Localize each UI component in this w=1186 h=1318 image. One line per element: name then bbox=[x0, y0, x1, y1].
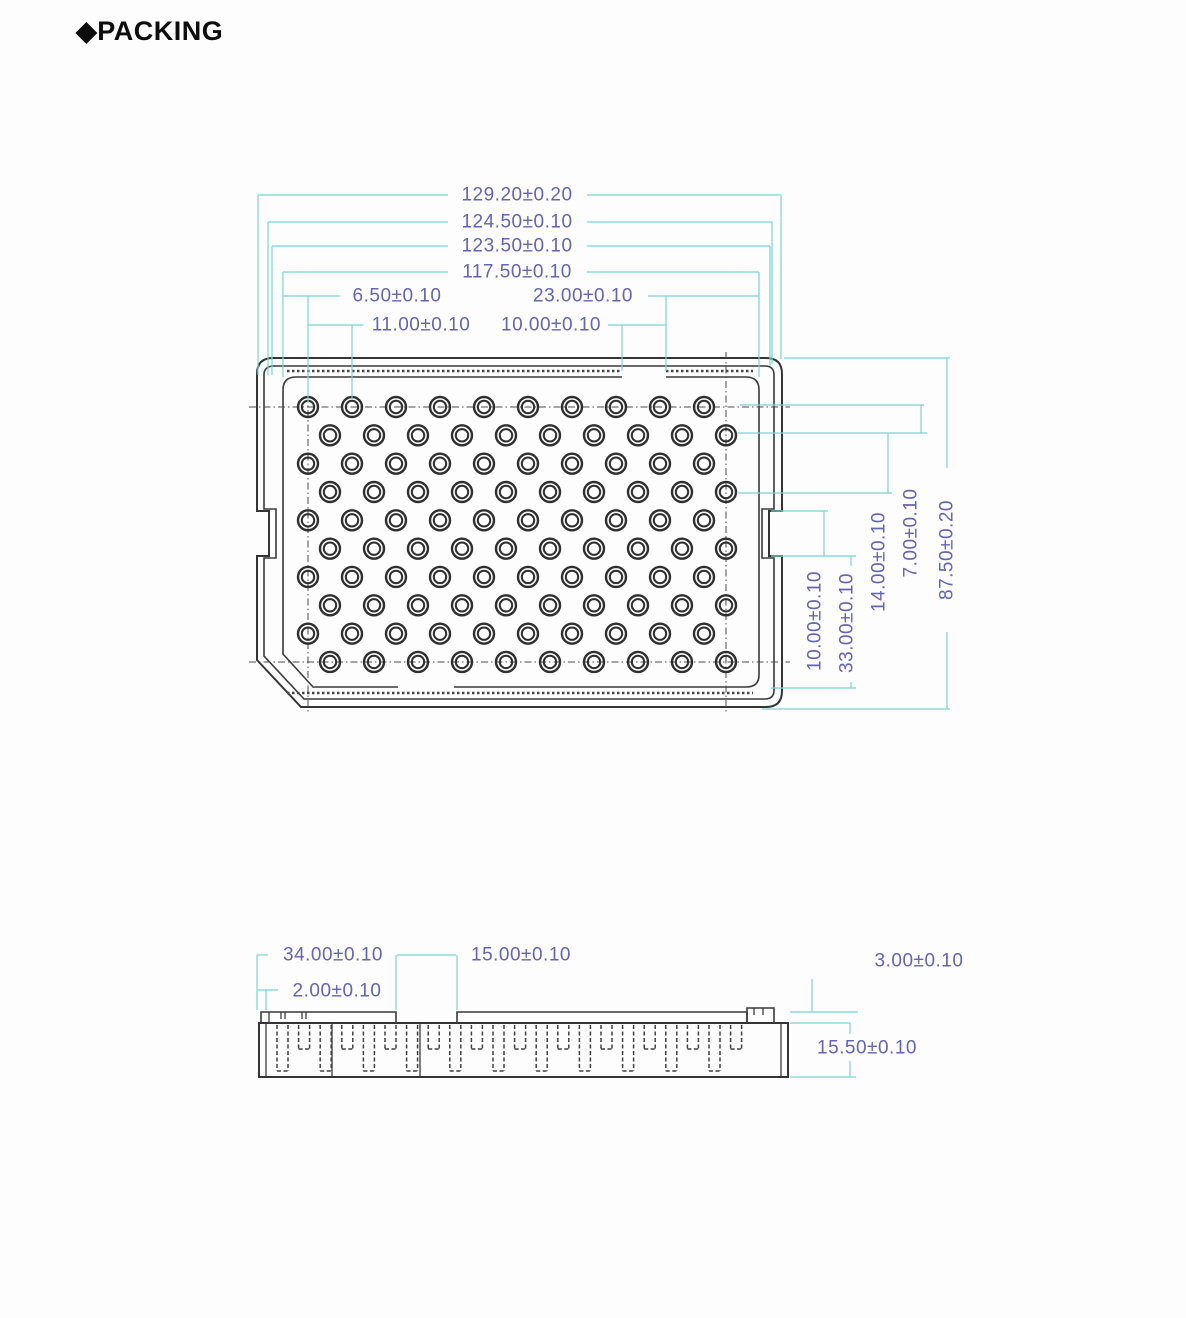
tray-hole-inner bbox=[412, 429, 424, 441]
tray-hole-inner bbox=[412, 542, 424, 554]
tray-hole-inner bbox=[500, 429, 512, 441]
tray-hole-inner bbox=[588, 599, 600, 611]
tray-hole-inner bbox=[478, 457, 490, 469]
tray-hole-inner bbox=[368, 542, 380, 554]
tray-hole-inner bbox=[566, 571, 578, 583]
tray-hole-inner bbox=[566, 627, 578, 639]
dim-lip-thickness: 3.00±0.10 bbox=[875, 951, 964, 972]
tray-hole-inner bbox=[610, 457, 622, 469]
tray-hole-inner bbox=[324, 542, 336, 554]
tray-hole-inner bbox=[434, 627, 446, 639]
tray-hole-inner bbox=[346, 457, 358, 469]
tray-hole-inner bbox=[478, 514, 490, 526]
tray-hole-inner bbox=[676, 599, 688, 611]
packing-drawing: 129.20±0.20 124.50±0.10 123.50±0.10 117.… bbox=[0, 0, 1186, 1318]
tray-hole-inner bbox=[676, 542, 688, 554]
tray-hole-inner bbox=[654, 457, 666, 469]
tray-hole-inner bbox=[456, 599, 468, 611]
dim-slot-to-edge: 23.00±0.10 bbox=[533, 286, 633, 307]
dim-left-section: 34.00±0.10 bbox=[283, 945, 383, 966]
tray-hole-inner bbox=[456, 429, 468, 441]
tray-hole-inner bbox=[544, 599, 556, 611]
tray-hole-inner bbox=[368, 429, 380, 441]
dim-hole-pitch: 11.00±0.10 bbox=[372, 315, 471, 336]
tray-hole-inner bbox=[346, 627, 358, 639]
tray-hole-inner bbox=[522, 571, 534, 583]
tray-hole-inner bbox=[478, 571, 490, 583]
tray-hole-inner bbox=[500, 486, 512, 498]
tray-hole-inner bbox=[390, 627, 402, 639]
tray-rim-right bbox=[454, 377, 759, 687]
tray-hole-inner bbox=[654, 514, 666, 526]
side-lip-ticks bbox=[269, 1008, 763, 1023]
tray-hole-inner bbox=[324, 429, 336, 441]
tray-hole-grid bbox=[298, 397, 736, 672]
side-lip-right-segment bbox=[457, 1012, 747, 1023]
tray-hole-inner bbox=[456, 542, 468, 554]
tray-hole-inner bbox=[346, 571, 358, 583]
tray-hole-inner bbox=[522, 457, 534, 469]
dim-overall-height: 87.50±0.20 bbox=[937, 500, 958, 600]
side-dimension-lines bbox=[257, 955, 858, 1077]
tray-hole-inner bbox=[390, 457, 402, 469]
tray-hole-inner bbox=[522, 627, 534, 639]
tray-hole-inner bbox=[544, 542, 556, 554]
tray-hole-inner bbox=[676, 429, 688, 441]
tray-hole-inner bbox=[390, 571, 402, 583]
tray-hole-inner bbox=[412, 486, 424, 498]
tray-hole-inner bbox=[698, 627, 710, 639]
dim-overall-width: 129.20±0.20 bbox=[461, 185, 572, 206]
tray-hole-inner bbox=[324, 599, 336, 611]
tray-hole-inner bbox=[566, 514, 578, 526]
tray-hole-inner bbox=[610, 627, 622, 639]
packing-page: ◆PACKING bbox=[0, 0, 1186, 1318]
dim-notch-to-bottom: 33.00±0.10 bbox=[837, 573, 858, 673]
tray-side-view: 34.00±0.10 2.00±0.10 15.00±0.10 3.00±0.1… bbox=[257, 945, 963, 1078]
tray-hole-inner bbox=[544, 486, 556, 498]
tray-hole-inner bbox=[346, 514, 358, 526]
tray-hole-inner bbox=[500, 599, 512, 611]
tray-hole-inner bbox=[610, 571, 622, 583]
dim-row-pitch-2: 14.00±0.10 bbox=[869, 512, 890, 612]
tray-hole-inner bbox=[412, 599, 424, 611]
tray-hole-inner bbox=[610, 514, 622, 526]
tray-hole-inner bbox=[698, 457, 710, 469]
tray-hole-inner bbox=[632, 429, 644, 441]
dim-edge-to-hole: 6.50±0.10 bbox=[353, 286, 442, 307]
tray-hole-inner bbox=[368, 599, 380, 611]
tray-hole-inner bbox=[324, 486, 336, 498]
dim-side-overall-height: 15.50±0.10 bbox=[817, 1038, 917, 1059]
dim-width-2: 124.50±0.10 bbox=[461, 212, 572, 233]
tray-hole-inner bbox=[368, 486, 380, 498]
side-end-tab bbox=[747, 1008, 774, 1023]
side-body-outline bbox=[259, 1023, 788, 1077]
tray-hole-inner bbox=[434, 571, 446, 583]
side-pocket-hidden-lines bbox=[277, 1025, 742, 1071]
tray-hole-inner bbox=[478, 627, 490, 639]
dim-row-pitch: 7.00±0.10 bbox=[901, 489, 922, 578]
tray-hole-inner bbox=[434, 457, 446, 469]
tray-hole-inner bbox=[698, 571, 710, 583]
tray-hole-inner bbox=[632, 486, 644, 498]
tray-hole-inner bbox=[522, 514, 534, 526]
tray-hole-inner bbox=[654, 571, 666, 583]
dim-slot-width: 10.00±0.10 bbox=[501, 315, 601, 336]
tray-hole-inner bbox=[588, 429, 600, 441]
tray-hole-inner bbox=[434, 514, 446, 526]
dim-end-tab: 2.00±0.10 bbox=[293, 981, 382, 1002]
tray-hole-inner bbox=[632, 542, 644, 554]
tray-hole-inner bbox=[698, 514, 710, 526]
tray-hole-inner bbox=[456, 486, 468, 498]
tray-top-view: 129.20±0.20 124.50±0.10 123.50±0.10 117.… bbox=[249, 185, 958, 714]
tray-hole-inner bbox=[588, 542, 600, 554]
tray-hole-inner bbox=[676, 486, 688, 498]
tray-hole-inner bbox=[566, 457, 578, 469]
tray-hole-inner bbox=[654, 627, 666, 639]
tray-hole-inner bbox=[632, 599, 644, 611]
tray-hole-inner bbox=[588, 486, 600, 498]
tray-hole-inner bbox=[544, 429, 556, 441]
dim-notch-height: 10.00±0.10 bbox=[805, 571, 826, 671]
dim-width-4: 117.50±0.10 bbox=[462, 262, 572, 283]
dim-recess-width: 15.00±0.10 bbox=[471, 945, 571, 966]
dim-width-3: 123.50±0.10 bbox=[461, 236, 572, 257]
tray-hole-inner bbox=[500, 542, 512, 554]
tray-hole-inner bbox=[390, 514, 402, 526]
